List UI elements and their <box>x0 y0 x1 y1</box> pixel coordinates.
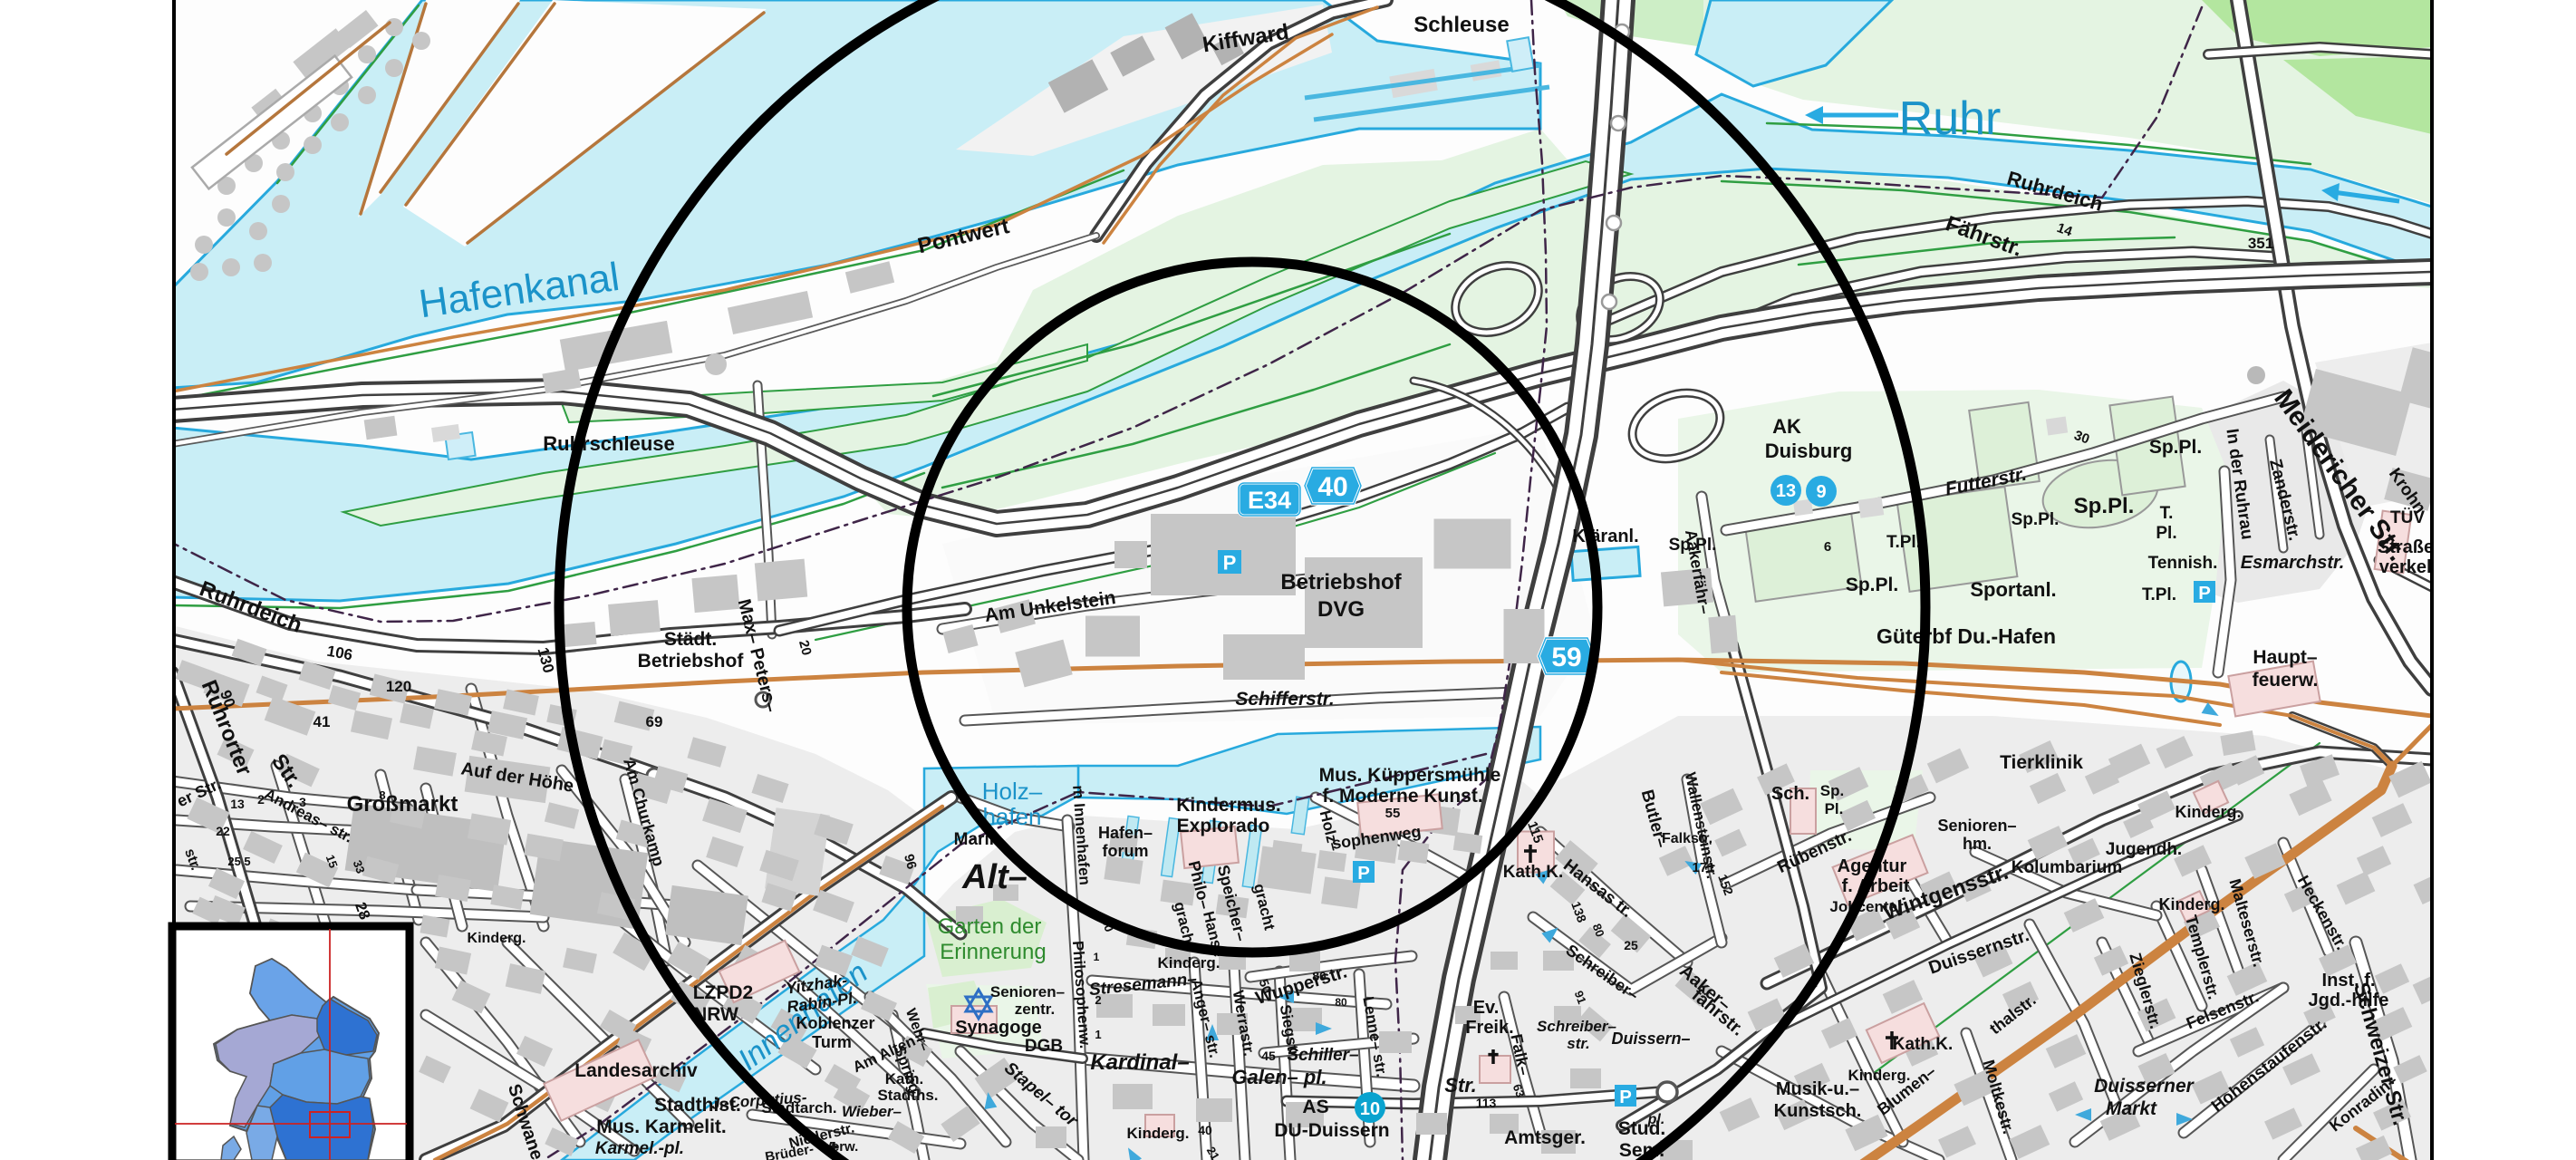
svg-text:Landesarchiv: Landesarchiv <box>574 1060 698 1081</box>
svg-text:Esmarchstr.: Esmarchstr. <box>2241 553 2345 573</box>
svg-text:Turm: Turm <box>812 1033 852 1051</box>
svg-text:80: 80 <box>1335 996 1347 1009</box>
svg-text:Kunstsch.: Kunstsch. <box>1774 1101 1862 1121</box>
svg-text:Schifferstr.: Schifferstr. <box>1235 689 1334 710</box>
svg-text:40: 40 <box>1317 472 1347 502</box>
svg-text:Straße: Straße <box>2378 537 2434 557</box>
svg-text:Kinderg.: Kinderg. <box>1127 1125 1190 1142</box>
svg-text:25: 25 <box>1624 938 1638 952</box>
svg-text:Duisburg: Duisburg <box>1765 440 1853 462</box>
svg-text:Ruhr: Ruhr <box>1899 92 2002 145</box>
svg-text:Kath.K.: Kath.K. <box>1503 863 1564 882</box>
svg-text:Garten der: Garten der <box>938 914 1042 939</box>
svg-text:6: 6 <box>1824 539 1831 555</box>
svg-text:zentr.: zentr. <box>1015 1000 1055 1018</box>
svg-text:Sp.Pl.: Sp.Pl. <box>1846 575 1898 595</box>
svg-text:P: P <box>2198 584 2211 604</box>
svg-text:59: 59 <box>1551 643 1581 672</box>
svg-text:Duisserner: Duisserner <box>2094 1076 2195 1097</box>
svg-text:10: 10 <box>1360 1099 1380 1119</box>
svg-text:Pl.: Pl. <box>1825 800 1844 817</box>
svg-text:Koblenzer: Koblenzer <box>796 1014 874 1032</box>
svg-text:2: 2 <box>1095 993 1101 1007</box>
svg-text:Duissern–: Duissern– <box>1611 1029 1690 1048</box>
svg-text:T.Pl.: T.Pl. <box>1886 533 1921 552</box>
svg-text:Sp.: Sp. <box>1820 782 1844 799</box>
svg-text:Pl.: Pl. <box>2156 524 2176 543</box>
svg-text:Sch.: Sch. <box>1771 784 1809 804</box>
svg-text:22: 22 <box>216 824 230 838</box>
svg-text:80: 80 <box>1312 969 1327 983</box>
svg-text:Schreiber–: Schreiber– <box>1537 1018 1616 1035</box>
svg-text:Erinnerung: Erinnerung <box>940 940 1046 964</box>
svg-text:T.: T. <box>2160 504 2174 523</box>
svg-text:351: 351 <box>2248 235 2273 252</box>
svg-text:1: 1 <box>1094 951 1100 963</box>
svg-text:Kindermus.: Kindermus. <box>1176 795 1281 816</box>
svg-text:2: 2 <box>257 792 265 807</box>
svg-text:Sp.Pl.: Sp.Pl. <box>2012 510 2060 529</box>
svg-text:Sportanl.: Sportanl. <box>1970 578 2056 601</box>
svg-text:9: 9 <box>1816 482 1826 502</box>
svg-text:Musik-u.–: Musik-u.– <box>1776 1079 1859 1099</box>
svg-text:45: 45 <box>1261 1049 1276 1063</box>
svg-text:Kardinal–: Kardinal– <box>1090 1050 1189 1075</box>
svg-text:Haupt–: Haupt– <box>2253 647 2317 668</box>
svg-text:113: 113 <box>1476 1096 1497 1110</box>
svg-text:DVG: DVG <box>1317 597 1365 622</box>
svg-text:55: 55 <box>1385 806 1401 821</box>
svg-text:Tennish.: Tennish. <box>2148 554 2218 573</box>
svg-text:str.: str. <box>1567 1035 1590 1052</box>
svg-text:Ev.: Ev. <box>1473 998 1500 1018</box>
svg-text:41: 41 <box>314 713 331 730</box>
svg-text:Freik.: Freik. <box>1465 1018 1513 1038</box>
svg-text:Jugendh.: Jugendh. <box>2106 840 2182 859</box>
svg-text:Galen– pl.: Galen– pl. <box>1231 1066 1327 1088</box>
svg-text:Mus. Küppersmühle: Mus. Küppersmühle <box>1319 765 1501 786</box>
svg-text:Kinderg.: Kinderg. <box>1848 1067 1911 1084</box>
svg-text:P: P <box>1357 864 1370 884</box>
svg-text:f. Arbeit: f. Arbeit <box>1842 876 1910 896</box>
svg-text:Güterbf Du.-Hafen: Güterbf Du.-Hafen <box>1877 624 2056 648</box>
svg-text:Schleuse: Schleuse <box>1413 13 1509 37</box>
svg-text:1: 1 <box>1095 1028 1101 1041</box>
svg-text:Großmarkt: Großmarkt <box>347 792 458 817</box>
svg-text:Kläranl.: Kläranl. <box>1572 527 1638 546</box>
svg-text:TÜV: TÜV <box>2390 508 2425 527</box>
svg-text:Sp.Pl.: Sp.Pl. <box>2149 437 2202 458</box>
svg-text:forum: forum <box>1103 842 1149 860</box>
svg-text:Explorado: Explorado <box>1177 816 1270 836</box>
svg-text:Betriebshof: Betriebshof <box>1280 570 1402 594</box>
svg-text:3: 3 <box>299 795 306 809</box>
svg-text:Kinderg.: Kinderg. <box>2175 803 2241 821</box>
svg-text:Sp.Pl.: Sp.Pl. <box>2074 494 2135 518</box>
svg-text:Tierklinik: Tierklinik <box>2000 752 2083 773</box>
svg-text:120: 120 <box>386 678 411 695</box>
svg-text:8: 8 <box>379 788 385 802</box>
svg-text:DU-Duissern: DU-Duissern <box>1274 1120 1389 1141</box>
svg-text:hm.: hm. <box>1963 835 1992 853</box>
svg-text:69: 69 <box>646 713 663 730</box>
svg-text:Kath.K.: Kath.K. <box>1893 1035 1954 1054</box>
svg-text:Str.: Str. <box>1444 1074 1476 1097</box>
svg-text:Synagoge: Synagoge <box>955 1018 1042 1038</box>
svg-text:13: 13 <box>230 797 245 811</box>
svg-text:Wieber–: Wieber– <box>842 1103 902 1120</box>
svg-text:Amtsger.: Amtsger. <box>1504 1127 1586 1148</box>
svg-text:Karmel.-pl.: Karmel.-pl. <box>595 1139 684 1158</box>
svg-text:P: P <box>1223 552 1237 575</box>
svg-text:Ruhrschleuse: Ruhrschleuse <box>543 432 675 455</box>
svg-text:Kinderg.: Kinderg. <box>2158 895 2224 913</box>
svg-text:Senioren–: Senioren– <box>1937 817 2016 835</box>
svg-text:Holz–: Holz– <box>982 778 1043 805</box>
svg-text:25 5: 25 5 <box>227 855 250 868</box>
svg-text:LZPD2: LZPD2 <box>693 982 754 1003</box>
svg-text:AK: AK <box>1772 415 1801 438</box>
svg-text:Städt.: Städt. <box>664 629 717 650</box>
svg-text:T.Pl.: T.Pl. <box>2142 585 2176 604</box>
svg-text:E34: E34 <box>1248 487 1291 514</box>
svg-text:Stud.: Stud. <box>1618 1118 1666 1139</box>
svg-text:Kolumbarium: Kolumbarium <box>2012 858 2122 877</box>
svg-text:Mus. Karmelit.: Mus. Karmelit. <box>596 1116 727 1137</box>
svg-text:P: P <box>1619 1087 1632 1107</box>
svg-text:40: 40 <box>1198 1123 1212 1137</box>
svg-text:Kinderg.: Kinderg. <box>468 931 526 946</box>
svg-text:f. Moderne Kunst.: f. Moderne Kunst. <box>1322 786 1482 807</box>
svg-text:Senioren–: Senioren– <box>990 983 1065 1000</box>
svg-text:Hafen–: Hafen– <box>1098 824 1153 842</box>
svg-text:Betriebshof: Betriebshof <box>638 651 745 672</box>
svg-text:Markt: Markt <box>2106 1098 2157 1119</box>
svg-text:feuerw.: feuerw. <box>2253 670 2319 691</box>
svg-text:Stadths.: Stadths. <box>877 1087 938 1104</box>
svg-text:13: 13 <box>1776 481 1796 501</box>
svg-text:AS: AS <box>1302 1097 1328 1117</box>
svg-text:verkeh: verkeh <box>2379 557 2438 577</box>
svg-text:Kath.: Kath. <box>885 1070 924 1087</box>
svg-text:DGB: DGB <box>1025 1037 1063 1056</box>
